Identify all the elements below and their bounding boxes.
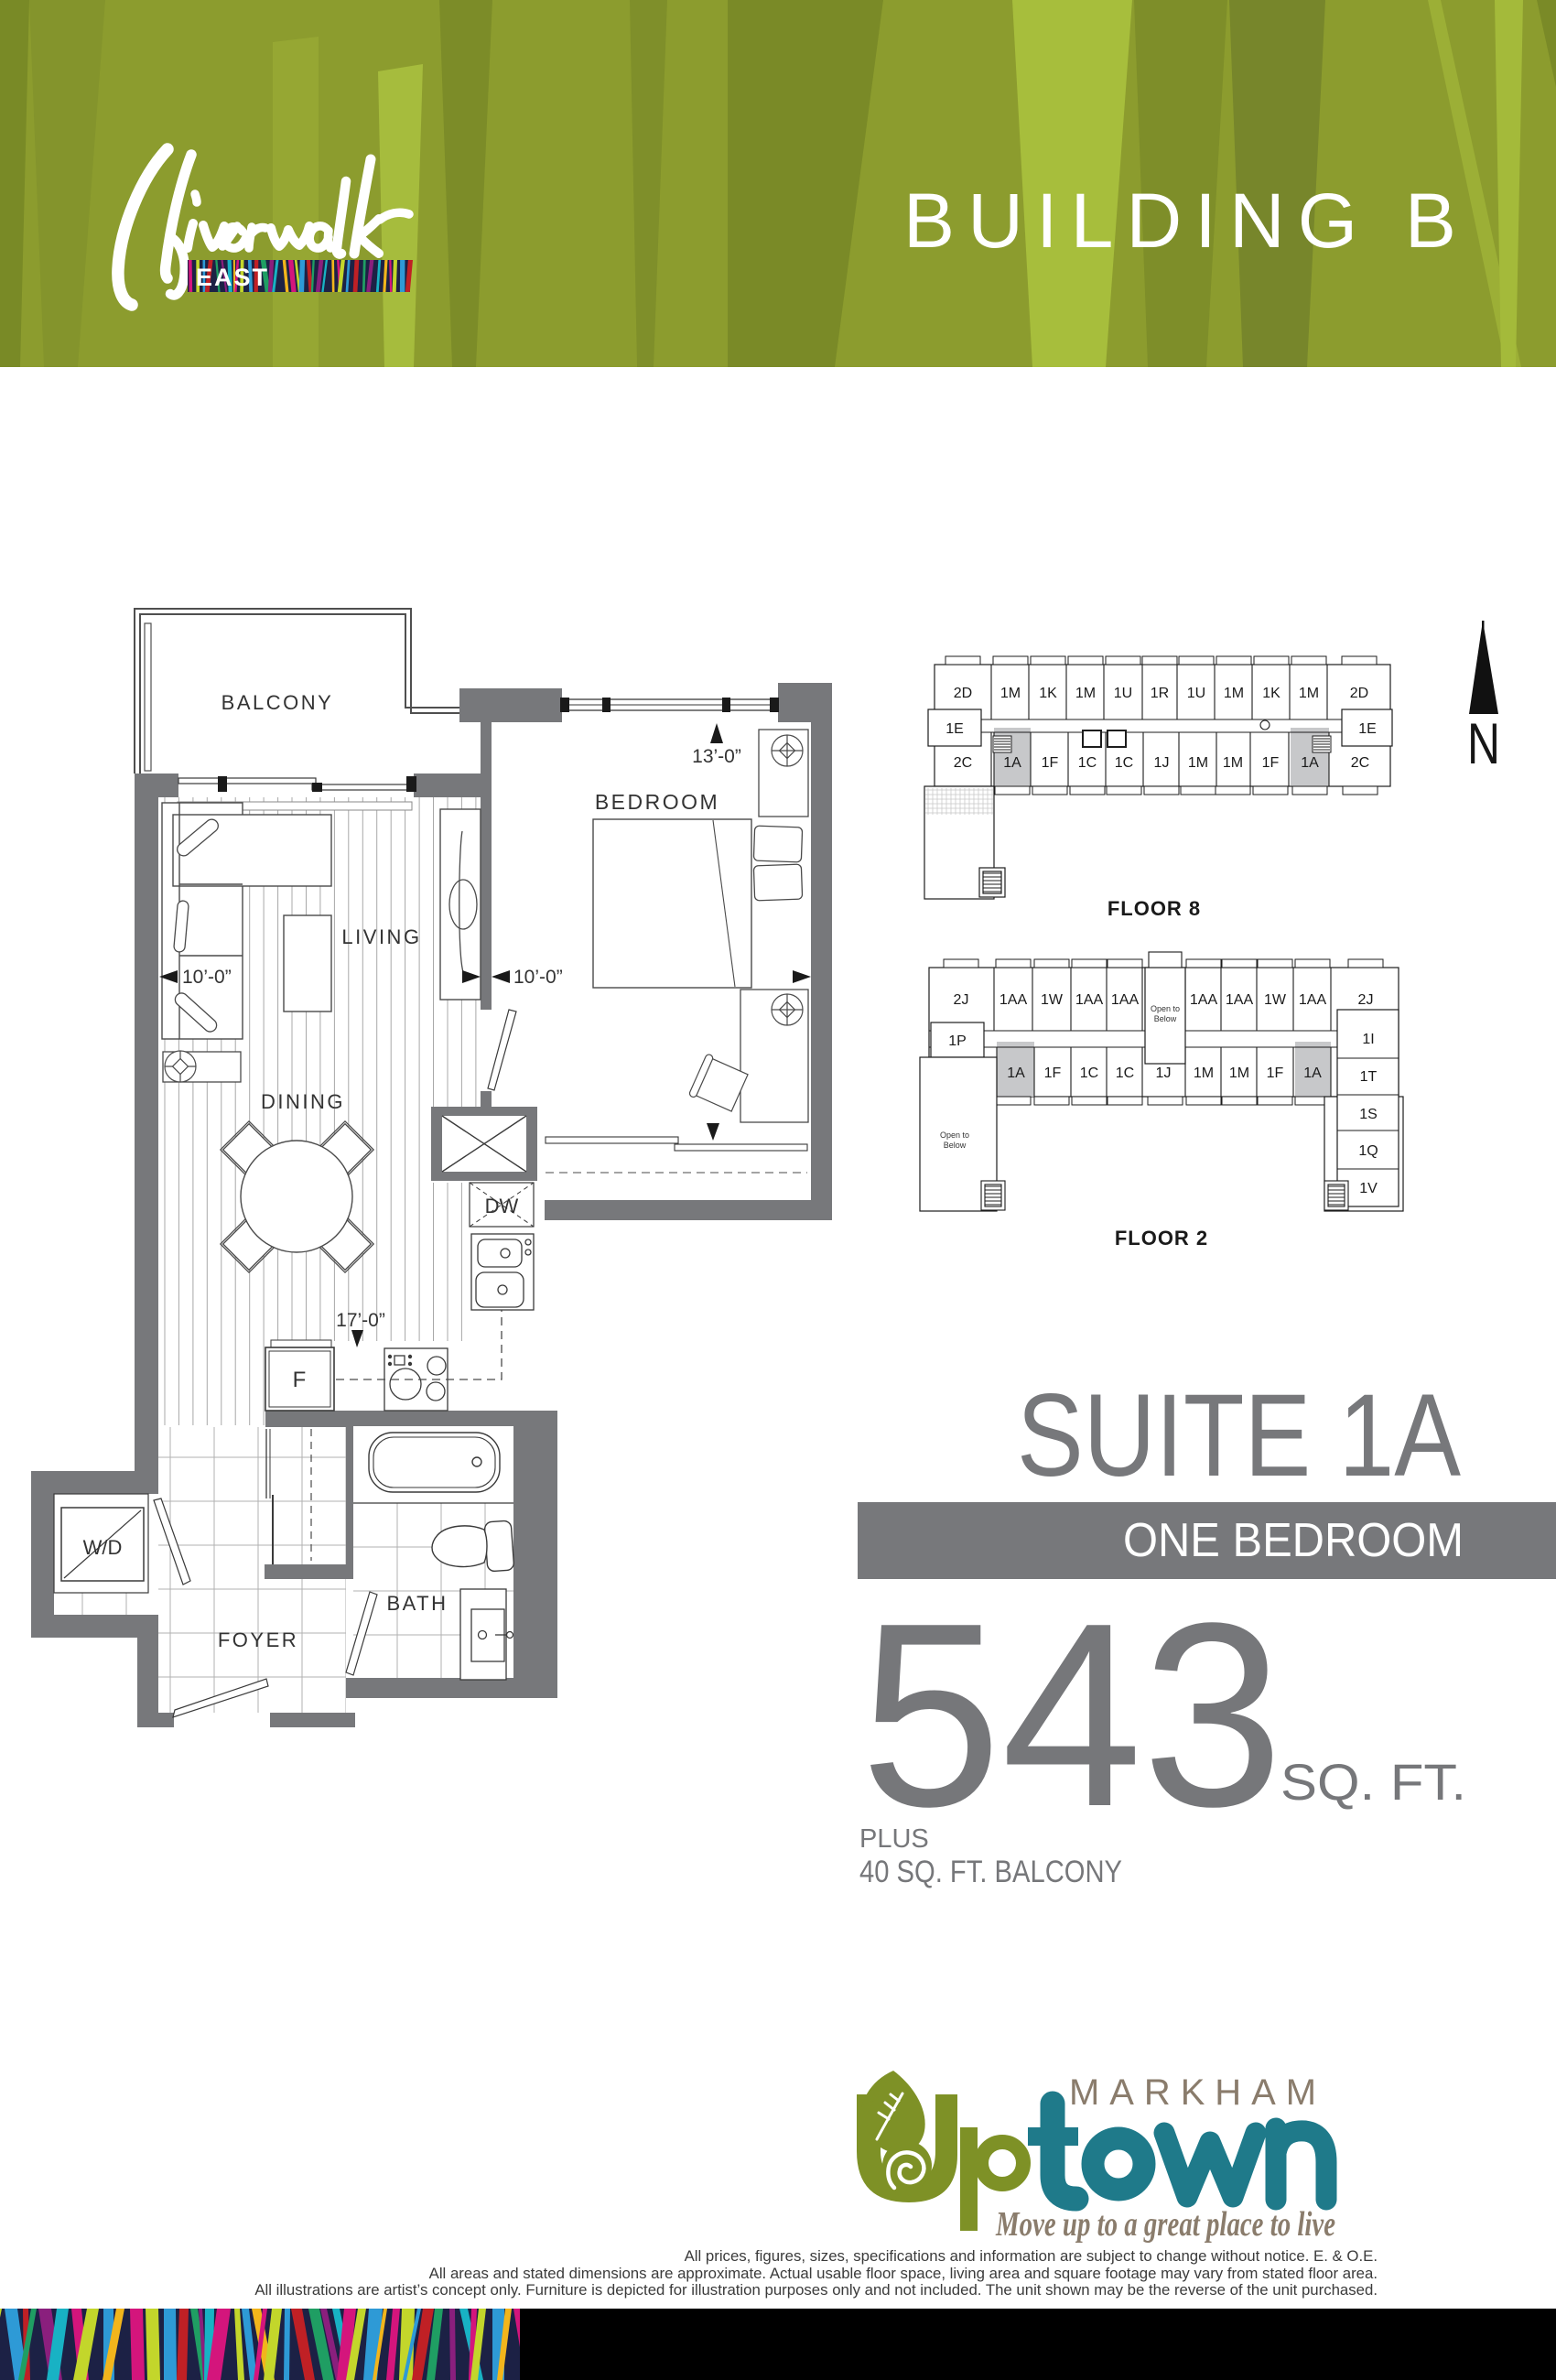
svg-text:Open to: Open to (940, 1130, 969, 1140)
svg-text:All prices, figures, sizes, sp: All prices, figures, sizes, specificatio… (685, 2247, 1378, 2265)
svg-text:17’-0”: 17’-0” (336, 1310, 385, 1331)
svg-text:1AA: 1AA (1075, 992, 1104, 1008)
svg-text:1V: 1V (1359, 1181, 1378, 1196)
svg-text:1K: 1K (1262, 686, 1280, 701)
svg-text:Below: Below (944, 1141, 967, 1150)
svg-text:1U: 1U (1187, 686, 1205, 701)
svg-text:40 SQ. FT. BALCONY: 40 SQ. FT. BALCONY (859, 1855, 1122, 1889)
svg-text:543: 543 (860, 1568, 1283, 1861)
svg-text:1F: 1F (1262, 755, 1280, 771)
svg-text:FLOOR 8: FLOOR 8 (1108, 897, 1201, 920)
svg-text:1AA: 1AA (1000, 992, 1028, 1008)
svg-text:LIVING: LIVING (341, 925, 421, 948)
svg-text:All areas and stated dimension: All areas and stated dimensions are appr… (429, 2265, 1378, 2282)
svg-text:1T: 1T (1360, 1069, 1378, 1085)
svg-text:SUITE 1A: SUITE 1A (1017, 1370, 1462, 1501)
svg-text:1AA: 1AA (1299, 992, 1327, 1008)
svg-text:1J: 1J (1154, 755, 1170, 771)
svg-text:1M: 1M (1223, 755, 1243, 771)
svg-text:1C: 1C (1116, 1066, 1134, 1081)
svg-text:1F: 1F (1044, 1066, 1062, 1081)
svg-text:10’-0”: 10’-0” (182, 967, 232, 988)
svg-text:SQ. FT.: SQ. FT. (1280, 1753, 1466, 1811)
svg-text:1A: 1A (1003, 755, 1021, 771)
svg-text:1W: 1W (1041, 992, 1064, 1008)
svg-text:1E: 1E (1358, 721, 1377, 737)
svg-text:FLOOR 2: FLOOR 2 (1115, 1227, 1208, 1249)
svg-text:1R: 1R (1151, 686, 1169, 701)
svg-text:1AA: 1AA (1111, 992, 1140, 1008)
svg-text:DW: DW (485, 1195, 519, 1217)
svg-text:2D: 2D (1350, 686, 1368, 701)
svg-text:1F: 1F (1267, 1066, 1284, 1081)
svg-text:1P: 1P (948, 1033, 967, 1049)
svg-text:1M: 1M (1229, 1066, 1249, 1081)
svg-text:1M: 1M (1188, 755, 1208, 771)
svg-text:1M: 1M (1224, 686, 1244, 701)
svg-text:1AA: 1AA (1226, 992, 1254, 1008)
svg-text:1A: 1A (1007, 1066, 1025, 1081)
svg-text:FOYER: FOYER (218, 1628, 298, 1651)
svg-text:13’-0”: 13’-0” (692, 746, 741, 767)
svg-text:1W: 1W (1264, 992, 1287, 1008)
svg-text:10’-0”: 10’-0” (513, 967, 563, 988)
svg-text:1M: 1M (1299, 686, 1319, 701)
svg-text:1E: 1E (945, 721, 964, 737)
svg-text:Move up to a great place to li: Move up to a great place to live (995, 2205, 1335, 2244)
svg-text:BUILDING B: BUILDING B (903, 178, 1469, 264)
svg-text:BEDROOM: BEDROOM (595, 790, 719, 814)
svg-text:2C: 2C (954, 755, 972, 771)
svg-text:1J: 1J (1156, 1066, 1172, 1081)
svg-text:Open to: Open to (1151, 1004, 1180, 1013)
svg-text:Below: Below (1154, 1014, 1177, 1023)
svg-text:MARKHAM: MARKHAM (1069, 2072, 1326, 2113)
svg-text:N: N (1467, 712, 1500, 776)
svg-text:All illustrations are artist’s: All illustrations are artist’s concept o… (254, 2281, 1378, 2299)
svg-text:2C: 2C (1351, 755, 1369, 771)
svg-text:DINING: DINING (261, 1090, 345, 1113)
svg-text:1A: 1A (1303, 1066, 1322, 1081)
svg-text:BATH: BATH (386, 1592, 448, 1615)
svg-text:1AA: 1AA (1190, 992, 1218, 1008)
svg-text:1C: 1C (1078, 755, 1097, 771)
svg-text:BALCONY: BALCONY (222, 691, 334, 714)
svg-text:1M: 1M (1194, 1066, 1214, 1081)
svg-text:2J: 2J (954, 992, 969, 1008)
svg-text:F: F (293, 1368, 307, 1392)
svg-text:ONE BEDROOM: ONE BEDROOM (1123, 1514, 1464, 1567)
svg-text:EAST: EAST (196, 264, 269, 291)
svg-text:1U: 1U (1114, 686, 1132, 701)
svg-text:1K: 1K (1039, 686, 1057, 701)
svg-text:2J: 2J (1358, 992, 1374, 1008)
svg-text:W/D: W/D (83, 1536, 123, 1559)
svg-text:1Q: 1Q (1358, 1143, 1378, 1159)
svg-text:2D: 2D (954, 686, 972, 701)
svg-text:1C: 1C (1115, 755, 1133, 771)
svg-text:1C: 1C (1080, 1066, 1098, 1081)
svg-text:PLUS: PLUS (859, 1824, 929, 1854)
svg-text:1M: 1M (1000, 686, 1021, 701)
svg-text:1S: 1S (1359, 1107, 1378, 1122)
svg-text:1F: 1F (1042, 755, 1059, 771)
svg-text:1I: 1I (1362, 1032, 1374, 1047)
svg-text:1M: 1M (1075, 686, 1096, 701)
svg-text:1A: 1A (1301, 755, 1319, 771)
